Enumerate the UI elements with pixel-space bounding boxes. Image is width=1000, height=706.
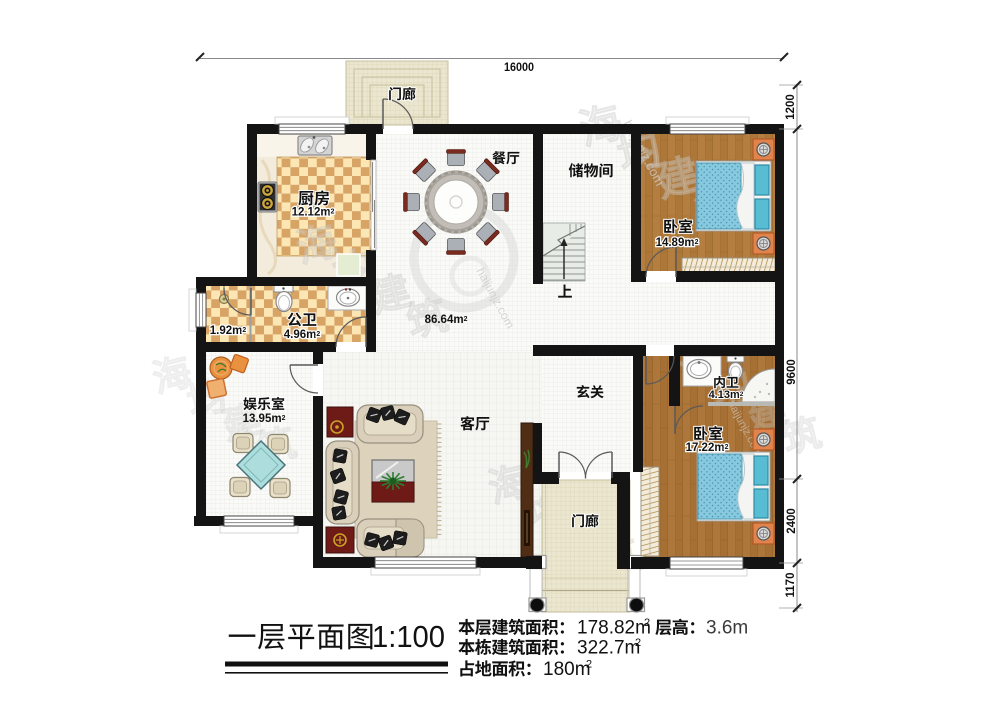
- svg-text:180m: 180m: [543, 659, 591, 680]
- svg-text:1:100: 1:100: [372, 620, 445, 654]
- svg-text:12.12m2: 12.12m2: [292, 207, 335, 219]
- svg-text:1200: 1200: [785, 94, 797, 120]
- svg-text:86.64m2: 86.64m2: [425, 314, 468, 326]
- svg-text:14.89m2: 14.89m2: [656, 237, 699, 249]
- svg-text:2: 2: [635, 637, 641, 649]
- svg-text:16000: 16000: [504, 60, 534, 74]
- svg-text:17.22m2: 17.22m2: [686, 442, 729, 454]
- svg-text:13.95m2: 13.95m2: [243, 413, 286, 425]
- svg-text:1.92m2: 1.92m2: [210, 325, 247, 337]
- svg-text:1170: 1170: [785, 573, 797, 598]
- svg-text:2400: 2400: [786, 508, 798, 534]
- svg-text:4.13m2: 4.13m2: [709, 389, 744, 401]
- svg-text:178.82m: 178.82m: [577, 618, 651, 639]
- svg-text:3.6m: 3.6m: [706, 618, 748, 639]
- svg-text:322.7m: 322.7m: [577, 638, 640, 659]
- svg-text:9600: 9600: [786, 359, 798, 385]
- svg-text:2: 2: [586, 659, 592, 671]
- svg-text:4.96m2: 4.96m2: [284, 329, 321, 341]
- svg-text:2: 2: [644, 617, 650, 629]
